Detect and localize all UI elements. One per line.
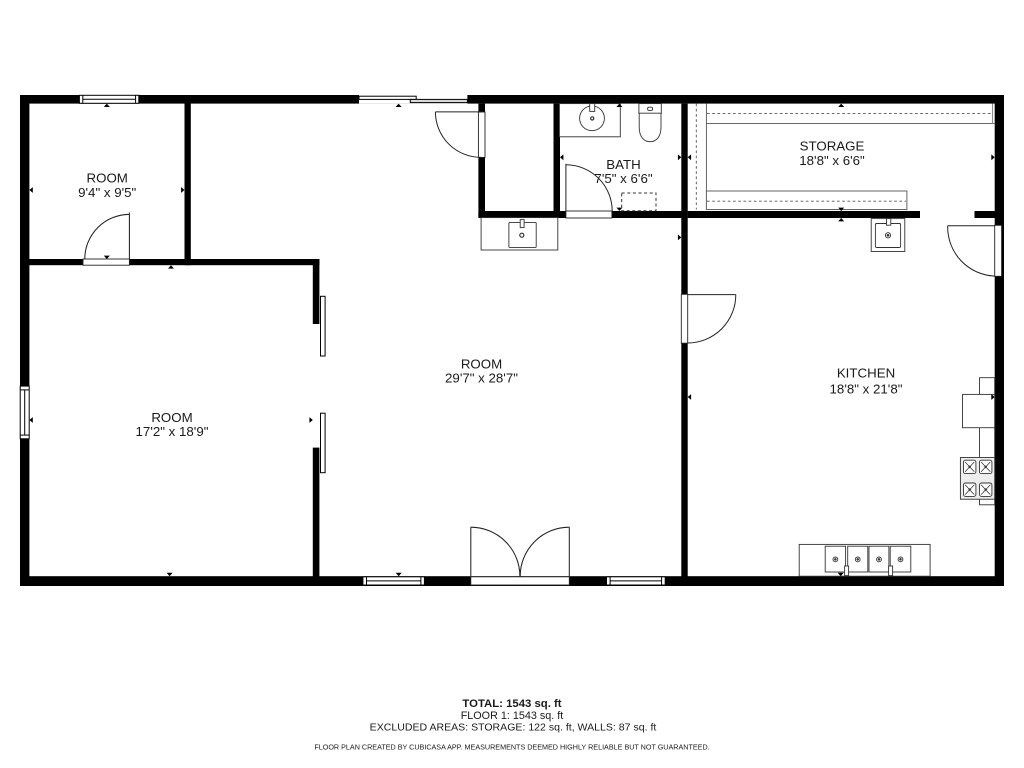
svg-text:29'7" x 28'7": 29'7" x 28'7" [445, 370, 518, 385]
svg-text:17'2" x 18'9": 17'2" x 18'9" [136, 424, 209, 439]
svg-text:18'8" x 21'8": 18'8" x 21'8" [830, 381, 903, 396]
svg-text:EXCLUDED AREAS: STORAGE: 122 s: EXCLUDED AREAS: STORAGE: 122 sq. ft, WAL… [370, 722, 657, 734]
svg-text:ROOM: ROOM [151, 410, 192, 425]
svg-text:7'5" x 6'6": 7'5" x 6'6" [594, 171, 652, 186]
svg-text:ROOM: ROOM [87, 171, 128, 186]
svg-text:9'4" x 9'5": 9'4" x 9'5" [78, 185, 136, 200]
svg-text:FLOOR 1: 1543 sq. ft: FLOOR 1: 1543 sq. ft [461, 710, 564, 722]
svg-text:BATH: BATH [606, 157, 640, 172]
svg-text:ROOM: ROOM [461, 356, 502, 371]
svg-text:18'8" x 6'6": 18'8" x 6'6" [799, 153, 865, 168]
svg-text:FLOOR PLAN CREATED BY CUBICASA: FLOOR PLAN CREATED BY CUBICASA APP. MEAS… [314, 743, 709, 752]
svg-text:KITCHEN: KITCHEN [837, 365, 895, 380]
svg-text:TOTAL: 1543 sq. ft: TOTAL: 1543 sq. ft [462, 698, 561, 710]
svg-text:STORAGE: STORAGE [800, 139, 865, 154]
